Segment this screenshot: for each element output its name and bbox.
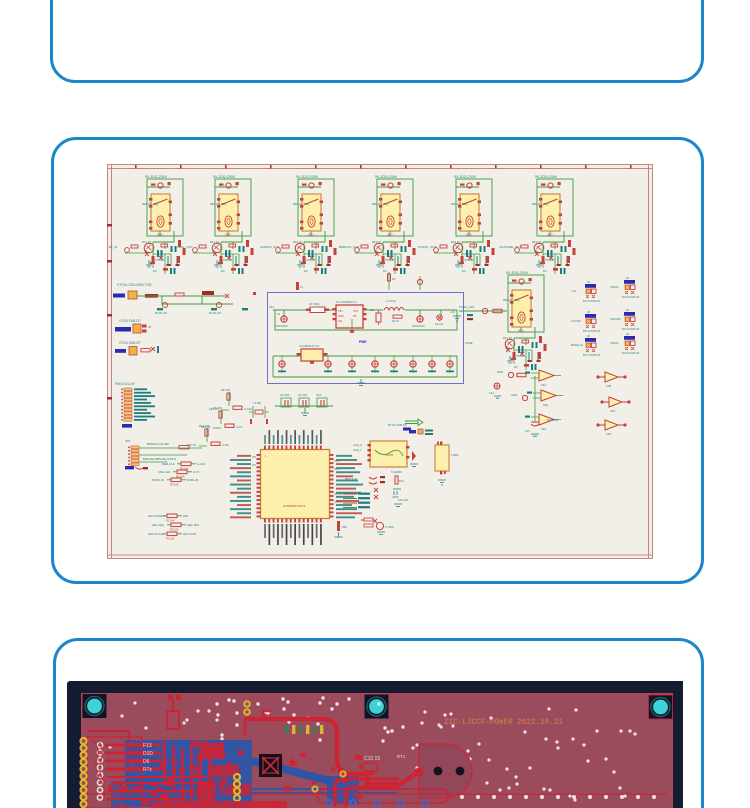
- svg-text:OUT: OUT: [353, 309, 359, 313]
- svg-text:JP: JP: [148, 325, 151, 329]
- svg-text:R31: R31: [399, 479, 404, 483]
- svg-text:VTCN-CON-ORN-TXD: VTCN-CON-ORN-TXD: [117, 283, 152, 287]
- svg-text:US3: US3: [610, 409, 616, 413]
- svg-text:STM8S207C8T6: STM8S207C8T6: [283, 504, 306, 508]
- svg-text:AIN1: AIN1: [497, 370, 504, 374]
- svg-text:VIN: VIN: [338, 309, 342, 313]
- svg-text:CAN_L: CAN_L: [353, 448, 362, 452]
- svg-text:AIN2: AIN2: [511, 393, 518, 397]
- svg-text:BYLN-CP: BYLN-CP: [209, 311, 221, 315]
- svg-text:U5A: U5A: [543, 403, 548, 407]
- svg-text:BND-RLN-BPLNE-COM-B: BND-RLN-BPLNE-COM-B: [143, 457, 176, 461]
- svg-text:R2 10K: R2 10K: [170, 528, 179, 532]
- svg-text:FB: FB: [353, 314, 357, 318]
- svg-text:BYLN-CP: BYLN-CP: [155, 311, 167, 315]
- svg-text:US6: US6: [606, 432, 612, 436]
- svg-text:R10 10K: R10 10K: [199, 424, 210, 428]
- svg-text:S-TRIG: S-TRIG: [385, 525, 394, 529]
- svg-text:C14: C14: [489, 391, 494, 395]
- svg-text:BYLN SUB-CP: BYLN SUB-CP: [622, 351, 640, 355]
- svg-text:BPCLK-B: BPCLK-B: [345, 477, 357, 481]
- svg-text:D6: D6: [143, 759, 150, 765]
- svg-text:RT1: RT1: [397, 754, 406, 759]
- svg-text:Y1 8M: Y1 8M: [253, 401, 262, 405]
- svg-text:470uF/25V: 470uF/25V: [275, 324, 288, 328]
- svg-text:BERKUS_OUT: BERKUS_OUT: [339, 245, 360, 249]
- svg-text:ZIC-LJCCF-POWER 2022.10.21: ZIC-LJCCF-POWER 2022.10.21: [444, 718, 563, 727]
- svg-text:C10: C10: [316, 393, 322, 397]
- svg-text:D1 SS34: D1 SS34: [309, 302, 320, 306]
- svg-text:ON: ON: [338, 319, 342, 323]
- svg-text:C31 104: C31 104: [398, 498, 408, 502]
- svg-text:LED-JDQ: LED-JDQ: [187, 523, 200, 527]
- svg-text:BYLN SUB-CP: BYLN SUB-CP: [622, 295, 640, 299]
- svg-text:+5V: +5V: [450, 310, 455, 314]
- svg-text:TJA1050: TJA1050: [391, 470, 402, 474]
- svg-text:R60: R60: [342, 525, 347, 529]
- svg-text:R1 1K: R1 1K: [392, 320, 399, 323]
- svg-text:C10 15: C10 15: [364, 756, 380, 762]
- svg-text:LED-POWER: LED-POWER: [148, 514, 165, 518]
- svg-text:CAN_H: CAN_H: [353, 443, 362, 447]
- svg-text:MOSF-IN: MOSF-IN: [152, 478, 164, 482]
- svg-text:R2 10K: R2 10K: [170, 483, 179, 487]
- svg-text:LED-CLOCK: LED-CLOCK: [148, 532, 164, 536]
- svg-text:C4 104: C4 104: [435, 322, 444, 326]
- svg-text:R2 10K: R2 10K: [166, 537, 175, 541]
- svg-text:R7x: R7x: [143, 767, 152, 773]
- svg-text:COML_OUT: COML_OUT: [459, 305, 475, 309]
- svg-text:VLCOM: VLCOM: [571, 319, 581, 323]
- svg-text:BYLN SUB-CP: BYLN SUB-CP: [622, 327, 640, 331]
- svg-text:R2 10K: R2 10K: [166, 519, 175, 523]
- svg-text:VTCN SUB-CP: VTCN SUB-CP: [119, 319, 141, 323]
- svg-text:MODL-B: MODL-B: [187, 478, 198, 482]
- svg-text:U2 AMS1117-3.3: U2 AMS1117-3.3: [299, 344, 320, 348]
- svg-text:R5: R5: [392, 277, 396, 281]
- svg-text:C8 104: C8 104: [280, 393, 289, 397]
- svg-text:HILPOW: HILPOW: [610, 317, 621, 321]
- svg-text:PWCN-01-NF: PWCN-01-NF: [115, 382, 135, 386]
- svg-text:VTCN SUB-CP: VTCN SUB-CP: [119, 341, 141, 345]
- svg-text:BL_IN: BL_IN: [109, 245, 117, 249]
- svg-text:BYLN SUB-CP: BYLN SUB-CP: [583, 299, 601, 303]
- svg-text:BYLN SUB-CP: BYLN SUB-CP: [583, 329, 601, 333]
- svg-text:L7805: L7805: [451, 453, 459, 457]
- svg-text:F13: F13: [143, 743, 152, 749]
- svg-text:U4A: U4A: [541, 383, 546, 387]
- svg-text:A-RX: A-RX: [222, 443, 229, 447]
- svg-text:A-TX: A-TX: [193, 470, 200, 474]
- svg-text:LED-COM: LED-COM: [183, 532, 197, 536]
- svg-text:VIN: VIN: [269, 305, 274, 309]
- svg-text:U1 LM2596S-5.0: U1 LM2596S-5.0: [336, 300, 357, 304]
- svg-text:220uF/16V: 220uF/16V: [412, 324, 425, 328]
- svg-text:C9 104: C9 104: [298, 393, 307, 397]
- svg-text:D1D: D1D: [143, 751, 153, 757]
- svg-text:LED: LED: [183, 514, 188, 518]
- svg-text:BARALCL: BARALCL: [571, 343, 584, 347]
- svg-text:COML: COML: [465, 341, 474, 345]
- svg-text:YHL: YHL: [571, 289, 577, 293]
- svg-text:L1 47uH: L1 47uH: [386, 299, 396, 303]
- svg-text:C15: C15: [525, 429, 530, 433]
- svg-text:REM-CLK: REM-CLK: [162, 462, 175, 466]
- svg-text:R8 10K: R8 10K: [221, 388, 230, 392]
- svg-text:US8: US8: [606, 384, 612, 388]
- svg-text:GND: GND: [338, 314, 344, 318]
- svg-text:BYLN SUB-CP: BYLN SUB-CP: [388, 423, 407, 427]
- svg-text:C1: C1: [277, 312, 281, 316]
- svg-text:LVDOL: LVDOL: [610, 285, 619, 289]
- svg-text:BPADN2-CLK-BP: BPADN2-CLK-BP: [147, 442, 169, 446]
- svg-text:PHAL_OUT: PHAL_OUT: [177, 245, 193, 249]
- svg-text:A-TX: A-TX: [236, 425, 243, 429]
- svg-text:A-CLK: A-CLK: [197, 462, 205, 466]
- svg-text:VP230: VP230: [385, 453, 394, 457]
- svg-text:D2: D2: [370, 308, 374, 312]
- svg-text:R9 10K: R9 10K: [213, 406, 222, 410]
- svg-text:JP2: JP2: [125, 439, 131, 443]
- svg-text:PWR: PWR: [359, 340, 367, 344]
- svg-text:MCD3-B: MCD3-B: [547, 418, 558, 422]
- svg-text:U6A: U6A: [541, 427, 546, 431]
- svg-text:BYLN SUB-CP: BYLN SUB-CP: [583, 353, 601, 357]
- svg-text:LED-JDQ: LED-JDQ: [152, 523, 165, 527]
- svg-text:CNE-CLK: CNE-CLK: [158, 470, 170, 474]
- svg-text:A-CLK: A-CLK: [244, 407, 252, 411]
- svg-text:VGATURE_OUT: VGATURE_OUT: [499, 245, 521, 249]
- svg-text:LDSOL: LDSOL: [610, 341, 619, 345]
- svg-text:KEY-IN: KEY-IN: [187, 443, 196, 447]
